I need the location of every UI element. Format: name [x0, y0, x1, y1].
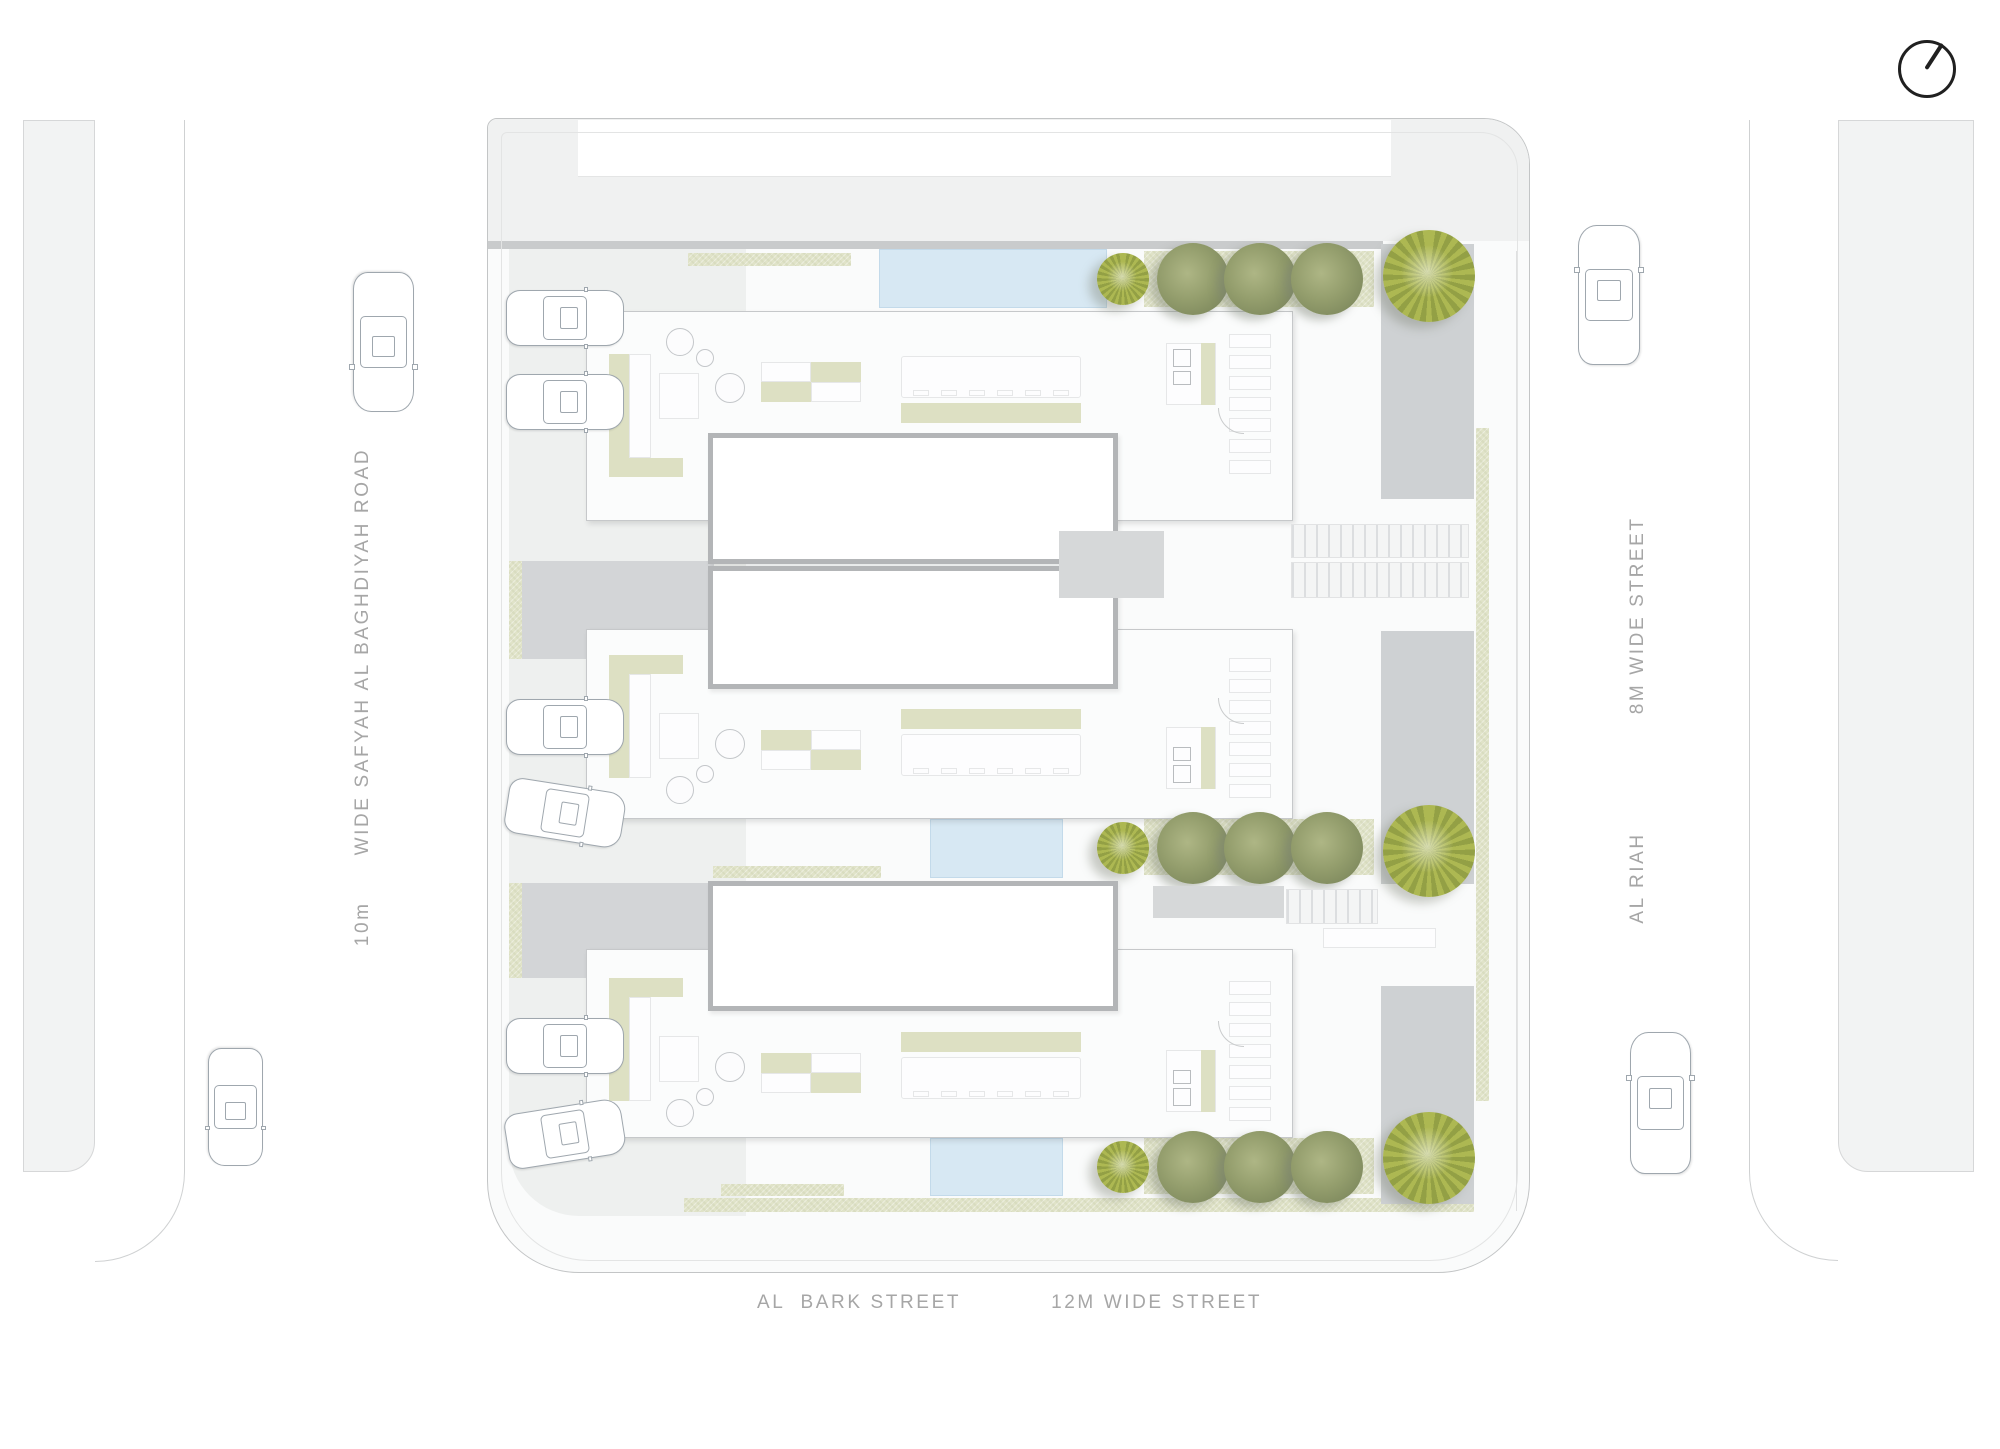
- right-road-name-label: AL RIAH: [1627, 832, 1649, 923]
- villa-3-area-rug: [659, 1036, 699, 1082]
- villa-1-small-tree: [1097, 253, 1149, 305]
- villa-2-round-tree: [1157, 812, 1229, 884]
- villa-2-sofa-l-horizontal: [609, 655, 683, 674]
- car-mirror-icon: [584, 753, 589, 758]
- villa-1-area-rug: [659, 373, 699, 419]
- villa-2-large-tree: [1383, 805, 1475, 897]
- villa-1-swimming-pool: [879, 249, 1107, 308]
- villa-1-kitchen-appliance: [1173, 371, 1191, 385]
- car-mirror-icon: [584, 696, 589, 701]
- bottom-road-name-label: AL BARK STREET: [757, 1292, 961, 1314]
- entry-bridge: [1153, 886, 1284, 918]
- villa-3-kitchen-appliance: [1173, 1070, 1191, 1084]
- villa-1-closet: [1229, 376, 1271, 390]
- villa-1-dining-chair: [969, 390, 985, 396]
- villa-3-modular-sofa-cell: [761, 1053, 811, 1073]
- villa-3-planter-strip: [721, 1184, 844, 1196]
- villa-3-dining-rug: [901, 1032, 1081, 1052]
- villa-3-closet: [1229, 1065, 1271, 1079]
- villa-1-dining-chair: [1025, 390, 1041, 396]
- villa-2-closet: [1229, 679, 1271, 693]
- villa-2-modular-sofa-cell: [811, 750, 861, 770]
- villa-1-side-table: [696, 349, 714, 367]
- villa-1-kitchen-appliance: [1173, 349, 1191, 367]
- entry-stairs: [1291, 524, 1469, 558]
- north-arrow-icon: [1898, 40, 1956, 98]
- villa-1-modular-sofa-cell: [761, 382, 811, 402]
- car-mirror-icon: [412, 364, 417, 370]
- left-road-width-label: 10m: [352, 901, 374, 946]
- villa-2-dining-chair: [941, 768, 957, 774]
- left-road-label: 10m WIDE SAFYAH AL BAGHDIYAH ROAD: [352, 448, 374, 946]
- car-mirror-icon: [1574, 267, 1579, 273]
- villa-1-dining-chair: [913, 390, 929, 396]
- villa-1-dining-chair: [941, 390, 957, 396]
- left-road-median-strip: [23, 120, 95, 1172]
- car-mirror-icon: [584, 371, 589, 376]
- left-road-sidewalk-strip: [95, 120, 185, 1262]
- entry-stairs: [1291, 562, 1469, 598]
- villa-1-closet: [1229, 355, 1271, 369]
- right-road-width-label: 8M WIDE STREET: [1627, 516, 1649, 714]
- right-road-median-strip: [1838, 120, 1974, 1172]
- car-mirror-icon: [587, 1156, 592, 1162]
- villa-3-dining-chair: [941, 1091, 957, 1097]
- villa-3-closet: [1229, 1002, 1271, 1016]
- villa-3-round-tree: [1224, 1131, 1296, 1203]
- car-sunroof: [1597, 280, 1621, 301]
- entry-path: [1323, 928, 1436, 948]
- car-sunroof: [560, 307, 577, 329]
- villa-1-armchair: [666, 328, 694, 356]
- villa-3-closet: [1229, 1086, 1271, 1100]
- car-sunroof: [559, 802, 580, 826]
- villa-3-sofa-l-horizontal: [609, 978, 683, 997]
- car-mirror-icon: [578, 1099, 583, 1105]
- villa-3-kitchen-planter: [1201, 1050, 1215, 1112]
- villa-1-modular-sofa-cell: [761, 362, 811, 382]
- villa-2-side-table: [696, 765, 714, 783]
- car-mirror-icon: [1626, 1075, 1631, 1081]
- car-sunroof: [559, 1121, 580, 1145]
- villa-2-planter-strip: [713, 866, 881, 878]
- right-road-sidewalk-strip: [1749, 120, 1838, 1261]
- villa-3-dining-chair: [969, 1091, 985, 1097]
- villa-3-modular-sofa-cell: [811, 1073, 861, 1093]
- villa-3-closet: [1229, 1044, 1271, 1058]
- villa-1-sofa-l-horizontal: [609, 458, 683, 477]
- villa-3-kitchen-appliance: [1173, 1088, 1191, 1106]
- villa-2-modular-sofa-cell: [761, 730, 811, 750]
- villa-2-kitchen-appliance: [1173, 747, 1191, 761]
- villa-1-round-tree: [1224, 243, 1296, 315]
- street-car-left: [353, 272, 414, 412]
- entry-bridge: [1059, 531, 1164, 598]
- villa-1-modular-sofa-cell: [811, 362, 861, 382]
- car-mirror-icon: [584, 287, 589, 292]
- villa-1-round-tree: [1157, 243, 1229, 315]
- site-plot: [487, 118, 1530, 1273]
- car-mirror-icon: [349, 364, 354, 370]
- villa-1-large-tree: [1383, 230, 1475, 322]
- car-mirror-icon: [261, 1126, 266, 1131]
- villa-2-garage-car: [506, 699, 624, 755]
- villa-1-garage-car: [506, 290, 624, 346]
- villa-2-armchair: [715, 729, 745, 759]
- villa-3-side-table: [696, 1088, 714, 1106]
- villa-3-dining-chair: [913, 1091, 929, 1097]
- villa-3-sofa-seats: [629, 997, 651, 1101]
- car-sunroof: [560, 1035, 577, 1057]
- car-mirror-icon: [584, 428, 589, 433]
- villa-3-armchair: [666, 1099, 694, 1127]
- villa-2-round-tree: [1224, 812, 1296, 884]
- villa-3-armchair: [715, 1052, 745, 1082]
- right-road-label: AL RIAH 8M WIDE STREET: [1627, 516, 1649, 923]
- villa-1-closet: [1229, 439, 1271, 453]
- villa-3-modular-sofa-cell: [761, 1073, 811, 1093]
- villa-2-armchair: [666, 776, 694, 804]
- street-car-right: [1578, 225, 1640, 365]
- villa-2-dining-chair: [1053, 768, 1069, 774]
- villa-3-courtyard: [708, 881, 1118, 1011]
- villa-2-kitchen-planter: [1201, 727, 1215, 789]
- villa-1-modular-sofa-cell: [811, 382, 861, 402]
- villa-1-courtyard: [708, 433, 1118, 564]
- site-plan-canvas: 10m WIDE SAFYAH AL BAGHDIYAH ROAD AL RIA…: [0, 0, 2000, 1449]
- villa-2-closet: [1229, 784, 1271, 798]
- car-mirror-icon: [584, 1072, 589, 1077]
- villa-1-armchair: [715, 373, 745, 403]
- car-mirror-icon: [584, 344, 589, 349]
- car-mirror-icon: [1638, 267, 1643, 273]
- villa-2-dining-chair: [1025, 768, 1041, 774]
- villa-1-kitchen-planter: [1201, 343, 1215, 405]
- villa-1-dining-chair: [997, 390, 1013, 396]
- villa-2-dining-chair: [997, 768, 1013, 774]
- villa-1-dining-rug: [901, 403, 1081, 423]
- car-sunroof: [225, 1102, 246, 1119]
- villa-3-large-tree: [1383, 1112, 1475, 1204]
- villa-2-area-rug: [659, 713, 699, 759]
- car-mirror-icon: [587, 785, 592, 791]
- wall-planter-sliver: [509, 883, 522, 978]
- car-mirror-icon: [584, 1015, 589, 1020]
- villa-3-closet: [1229, 981, 1271, 995]
- car-mirror-icon: [1689, 1075, 1694, 1081]
- villa-1-round-tree: [1291, 243, 1363, 315]
- entry-stairs: [1286, 889, 1378, 924]
- villa-1-closet: [1229, 334, 1271, 348]
- left-road-name-label: WIDE SAFYAH AL BAGHDIYAH ROAD: [352, 448, 374, 856]
- villa-3-dining-chair: [1025, 1091, 1041, 1097]
- car-sunroof: [560, 716, 577, 738]
- villa-3-closet: [1229, 1107, 1271, 1121]
- street-car-left: [208, 1048, 263, 1166]
- villa-3-small-tree: [1097, 1141, 1149, 1193]
- villa-2-dining-chair: [913, 768, 929, 774]
- right-sidewalk-line: [1516, 251, 1517, 1211]
- right-sidewalk-planter-strip: [1476, 428, 1489, 1101]
- villa-3-dining-chair: [1053, 1091, 1069, 1097]
- car-mirror-icon: [205, 1126, 210, 1131]
- street-car-right: [1630, 1032, 1691, 1174]
- villa-2-closet: [1229, 763, 1271, 777]
- villa-2-sofa-seats: [629, 674, 651, 778]
- villa-1-dining-chair: [1053, 390, 1069, 396]
- car-mirror-icon: [578, 842, 583, 848]
- villa-2-small-tree: [1097, 822, 1149, 874]
- bottom-road-label: AL BARK STREET 12M WIDE STREET: [757, 1292, 1262, 1314]
- villa-3-round-tree: [1291, 1131, 1363, 1203]
- car-sunroof: [560, 391, 577, 413]
- villa-2-modular-sofa-cell: [811, 730, 861, 750]
- wall-planter-sliver: [509, 561, 522, 659]
- villa-2-swimming-pool: [930, 819, 1063, 878]
- villa-3-dining-chair: [997, 1091, 1013, 1097]
- villa-2-kitchen-appliance: [1173, 765, 1191, 783]
- villa-3-garage-car: [506, 1018, 624, 1074]
- villa-3-swimming-pool: [930, 1138, 1063, 1196]
- villa-1-planter-strip: [688, 253, 851, 266]
- villa-3-round-tree: [1157, 1131, 1229, 1203]
- car-sunroof: [1649, 1088, 1673, 1109]
- bottom-road-width-label: 12M WIDE STREET: [1051, 1292, 1262, 1314]
- villa-2-modular-sofa-cell: [761, 750, 811, 770]
- car-sunroof: [372, 337, 396, 358]
- villa-2-closet: [1229, 721, 1271, 735]
- villa-2-dining-rug: [901, 709, 1081, 729]
- villa-2-courtyard: [708, 566, 1118, 689]
- villa-2-round-tree: [1291, 812, 1363, 884]
- villa-2-closet: [1229, 742, 1271, 756]
- villa-2-closet: [1229, 658, 1271, 672]
- villa-3-modular-sofa-cell: [811, 1053, 861, 1073]
- villa-1-garage-car: [506, 374, 624, 430]
- villa-2-dining-chair: [969, 768, 985, 774]
- villa-1-sofa-seats: [629, 354, 651, 458]
- garden-walk-strip: [684, 1198, 1474, 1212]
- villa-1-closet: [1229, 460, 1271, 474]
